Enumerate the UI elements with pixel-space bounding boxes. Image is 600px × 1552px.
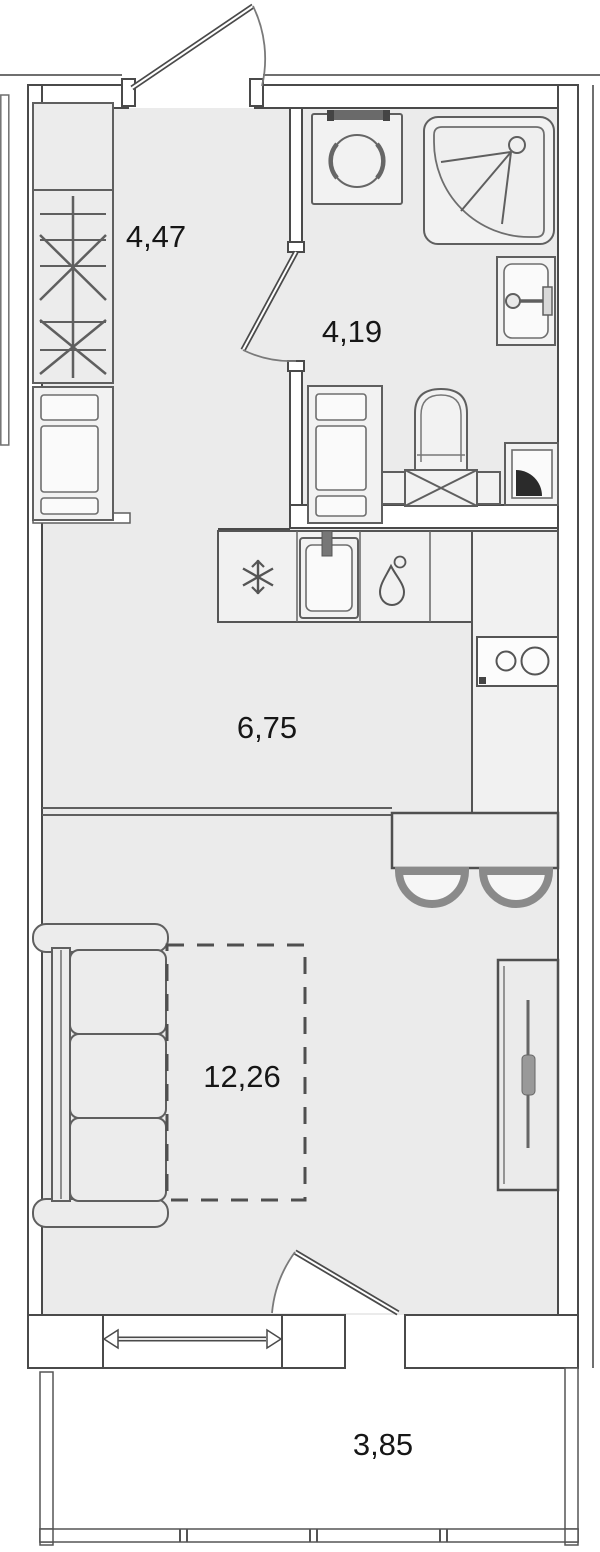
balcony	[40, 1368, 578, 1545]
entry-jamb-left	[122, 79, 135, 106]
entry-jamb-right	[250, 79, 263, 106]
neighbor-wall-left	[1, 95, 9, 445]
kitchen-sink	[300, 531, 358, 618]
balcony-glazing	[40, 1529, 578, 1542]
bathroom-jamb-bottom	[288, 361, 304, 371]
sofa-cushion	[70, 1118, 166, 1201]
sofa-cushion	[70, 1034, 166, 1118]
kitchen-counter	[218, 529, 472, 622]
room-area-label-hallway: 4,47	[126, 219, 186, 254]
wall-bottom-right	[405, 1315, 578, 1368]
wall-top-right	[255, 85, 575, 108]
kitchen-counter-right	[472, 531, 558, 813]
washing-machine	[312, 110, 402, 204]
room-area-label-living-room: 12,26	[203, 1059, 281, 1094]
shower-cabin	[424, 117, 554, 244]
room-area-label-kitchen: 6,75	[237, 710, 297, 745]
faucet-icon	[506, 294, 520, 308]
balcony-wall-left	[40, 1372, 53, 1545]
corner-unit	[505, 443, 558, 505]
wall-bottom-mid	[282, 1315, 345, 1368]
floor-plan: 4,47 4,19 6,75 12,26 3,85	[0, 0, 600, 1552]
bathroom-cabinet	[308, 386, 382, 523]
bathroom-jamb-top	[288, 242, 304, 252]
entrance-door	[132, 6, 265, 88]
bathroom-sink	[497, 257, 555, 345]
wardrobe	[498, 960, 558, 1190]
wall-right	[558, 85, 578, 1315]
balcony-wall-right	[565, 1368, 578, 1545]
wall-bottom-left	[28, 1315, 103, 1368]
bathroom-partition-upper	[290, 108, 302, 250]
sofa	[33, 924, 168, 1227]
dining-table	[392, 813, 558, 868]
sofa-armrest	[33, 1199, 168, 1227]
hallway-wardrobe	[33, 103, 113, 383]
window	[103, 1315, 282, 1368]
stool	[483, 871, 549, 904]
tap-icon	[322, 531, 332, 556]
stool	[399, 871, 465, 904]
sofa-cushion	[70, 950, 166, 1034]
stove	[477, 637, 558, 686]
toilet-mat	[382, 470, 500, 506]
room-area-label-balcony: 3,85	[353, 1427, 413, 1462]
bathroom-partition-lower	[290, 363, 302, 527]
room-area-label-bathroom: 4,19	[322, 314, 382, 349]
